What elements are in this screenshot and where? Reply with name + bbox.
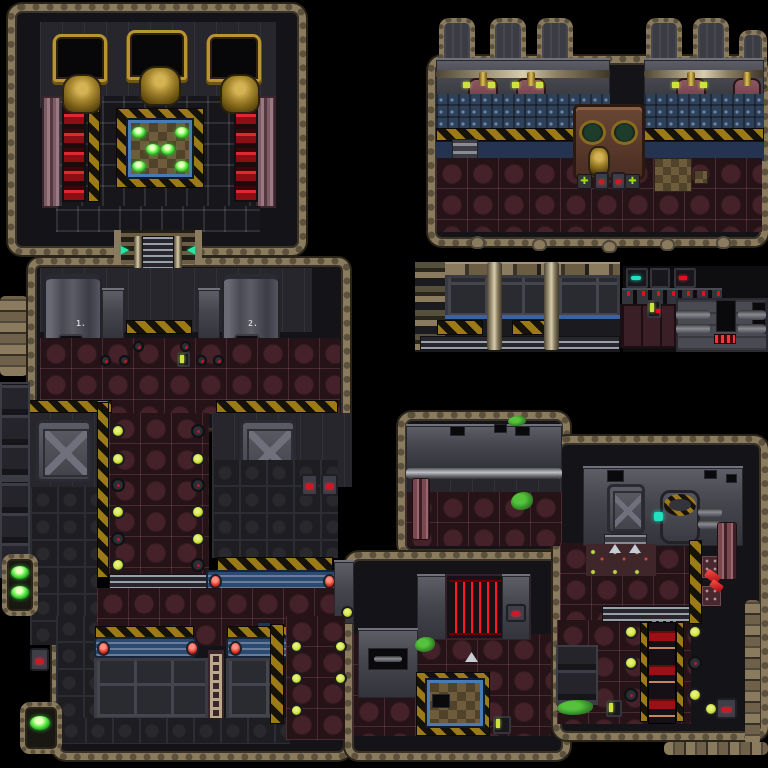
floor-button[interactable] [111,452,125,466]
hazard-stripe [640,622,648,722]
conveyor-track [602,606,690,622]
press-hazard-ring [664,494,696,516]
floor-button[interactable] [191,452,205,466]
machine-gap [716,300,736,332]
hazard-stripe [437,320,483,335]
hazard-stripe [644,128,764,141]
floor-button[interactable] [334,672,347,685]
bronze-robot [139,66,181,106]
rock-bump [660,238,675,251]
pipe-room-wall [406,424,562,470]
wall-vent [515,426,530,436]
red-energy-pillar [234,106,258,202]
floor-port [180,341,191,352]
piston-pipe [738,324,766,334]
piston-pipe [738,310,766,320]
hazard-stripe [97,402,109,578]
floor-button[interactable] [624,625,638,639]
energy-track-red [648,622,676,724]
hazard-stripe [216,400,338,413]
hazard-stripe [126,320,192,334]
conveyor-cap-red [186,641,199,656]
rock-bump [470,236,485,249]
checker-floor [654,158,692,192]
console-screen [611,120,638,145]
floor-switch-green[interactable]: ✚ [625,174,640,189]
floor-button[interactable] [624,656,638,670]
green-pod[interactable] [146,144,160,155]
pod-screen-green [30,716,50,730]
floor-port [133,341,144,352]
signal-pod [2,554,38,616]
generator-tower [222,274,280,342]
rock-pipe-right [745,600,760,745]
green-light [536,82,543,88]
floor-port [100,355,111,366]
red-vent-grate [714,334,736,344]
floor-button[interactable] [191,532,205,546]
floor-button[interactable] [290,640,303,653]
mauve-pillar [42,96,62,208]
floor-button[interactable] [334,640,347,653]
conveyor-cap-red [209,574,222,589]
green-pod[interactable] [175,161,189,172]
support-pipe [544,262,559,350]
floor-button[interactable] [111,424,125,438]
hazard-stripe [676,622,684,722]
console-screen [579,120,606,145]
conveyor-arrow-left[interactable]: ◀ [182,242,200,256]
red-switch-console[interactable] [506,604,526,622]
signal-lamp-green [11,566,29,579]
red-readout [679,276,687,280]
red-switch-console[interactable] [716,698,737,719]
maroon-pipe-stack [412,478,430,540]
rock-bump [716,236,731,249]
floor-port [688,656,702,670]
red-switch-console[interactable] [301,474,318,496]
green-light [672,82,679,88]
blast-door[interactable] [36,420,92,482]
green-light [488,82,495,88]
red-switch-console[interactable] [30,648,49,671]
floor-port [196,355,207,366]
green-pod[interactable] [175,127,189,138]
wall-vent [607,470,624,482]
mini-console[interactable] [650,268,670,288]
device-light [650,303,654,312]
mauve-pillar [256,96,276,208]
blast-door[interactable] [607,484,645,534]
conveyor-cap-red [229,641,242,656]
floor-port [191,558,205,572]
rock-bump [532,238,547,251]
platform-hatch [432,694,450,708]
laser-gate-red [449,580,501,635]
floor-port [624,688,638,702]
floor-port [119,355,130,366]
storage-locker [0,382,30,480]
steel-pipe [406,468,562,479]
maroon-pipe-stack [717,522,737,580]
green-light [463,82,470,88]
generator-label-2: 2. [246,318,260,328]
red-switch-console[interactable] [594,172,609,190]
walkway-panels [212,460,338,558]
rock-pipe-bottom-right [664,742,768,755]
device-light [609,703,613,712]
rock-bump [602,240,617,253]
piston-pipe [698,508,722,517]
floor-port [111,478,125,492]
wall-vent [450,426,465,436]
hatch-handle [374,656,402,662]
floor-button[interactable] [111,505,125,519]
hazard-stripe [88,106,100,202]
gray-tile-floor [56,206,260,232]
generator-tower [44,274,102,342]
floor-button[interactable] [111,558,125,572]
floor-button[interactable] [290,704,303,717]
laser-side-wall [417,574,447,640]
red-switch-console[interactable] [321,474,338,496]
sparkle-floor [586,544,656,576]
shelf-ledge [445,262,620,275]
floor-button[interactable] [688,625,702,639]
machine-wall-panels [94,658,208,720]
corridor-wall-panels [445,275,620,319]
wall-vent [494,424,507,433]
wall-vent [704,470,717,479]
side-wall [102,288,124,340]
hazard-stripe [270,624,284,724]
conveyor-cap-red [97,641,110,656]
floor-button[interactable] [688,688,702,702]
bronze-robot [62,74,102,114]
floor-button[interactable] [191,505,205,519]
generator-label-1: 1. [74,318,88,328]
green-light [512,82,519,88]
green-pod[interactable] [132,127,146,138]
red-energy-pillar [62,106,86,202]
floor-port [191,424,205,438]
rock-wing-left [0,296,28,376]
wall-pipe-rail [436,70,610,78]
side-wall [198,288,220,340]
device-light [656,309,660,313]
conveyor-arrow-right[interactable]: ▶ [116,242,134,256]
floor-port [191,478,205,492]
canister-lights [622,291,722,296]
corridor-floor [109,413,209,579]
red-switch-console[interactable] [611,172,626,190]
hazard-stripe [689,540,702,624]
floor-button[interactable] [290,672,303,685]
floor-port [213,355,224,366]
support-pipe [487,262,502,350]
blue-trim [445,315,620,319]
wall-vent [726,474,737,483]
factory-map[interactable]: ▶◀✚✚1.2. [0,0,768,768]
device-light [496,719,500,728]
bronze-robot [220,74,260,114]
signal-lamp-green [11,586,29,599]
teal-indicator [654,512,663,521]
green-pod[interactable] [161,144,175,155]
green-light [700,82,707,88]
walkway-panels [58,718,290,744]
machine-wall-panels [226,658,276,720]
piston-pipe [676,310,710,320]
floor-port [111,532,125,546]
teal-readout [631,276,641,280]
blue-panel-wall [644,94,764,130]
ladder[interactable] [210,654,222,728]
hazard-stripe [217,557,333,571]
piston-pipe [676,324,710,334]
floor-button[interactable] [341,606,354,619]
device-light [180,355,184,363]
green-pod[interactable] [132,161,146,172]
checker-floor [694,170,708,184]
floor-switch-green[interactable]: ✚ [577,174,592,189]
conveyor-track [420,336,620,350]
storage-locker [556,645,598,705]
